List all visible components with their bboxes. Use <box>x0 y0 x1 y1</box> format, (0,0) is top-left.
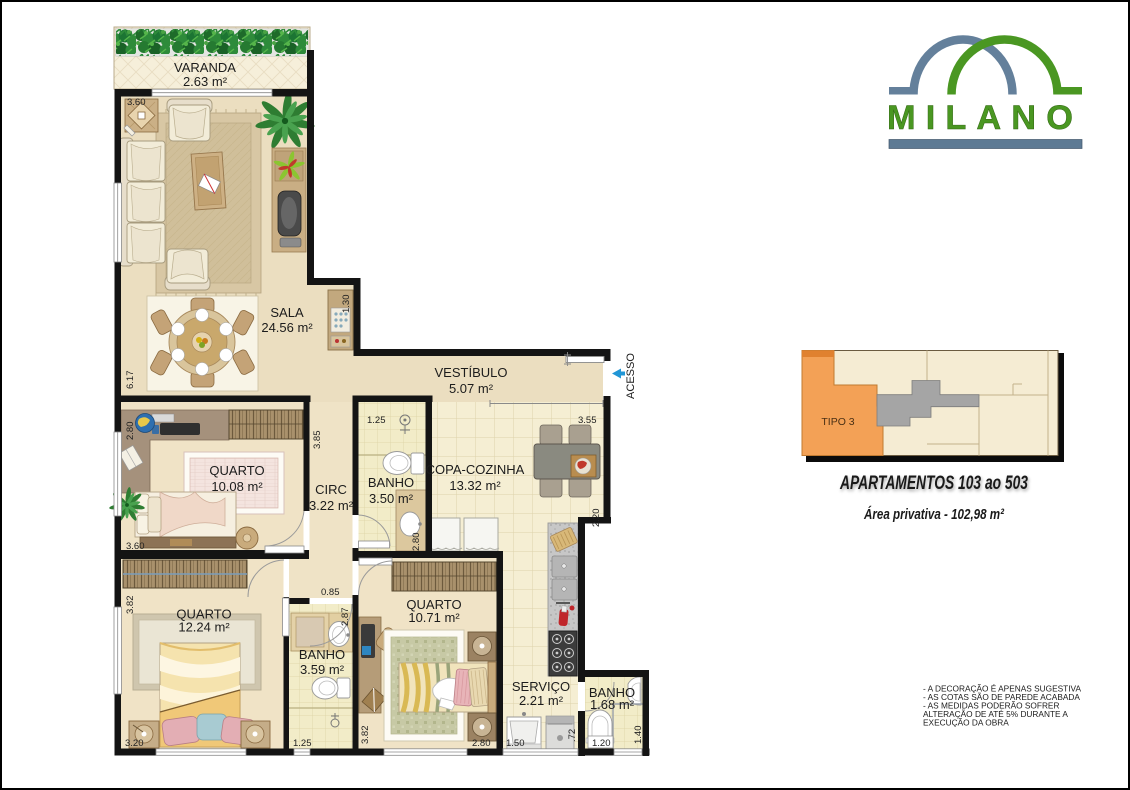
svg-text:3.22 m²: 3.22 m² <box>309 498 354 513</box>
svg-text:Área privativa - 102,98 m²: Área privativa - 102,98 m² <box>863 506 1005 523</box>
svg-text:COPA-COZINHA: COPA-COZINHA <box>426 462 525 477</box>
svg-text:10.71 m²: 10.71 m² <box>408 610 460 625</box>
svg-text:3.82: 3.82 <box>125 596 136 615</box>
svg-text:2.80: 2.80 <box>411 533 422 552</box>
svg-text:VESTÍBULO: VESTÍBULO <box>435 365 508 380</box>
svg-text:BANHO: BANHO <box>368 475 414 490</box>
svg-text:TIPO 3: TIPO 3 <box>821 416 854 428</box>
svg-text:2.20: 2.20 <box>591 509 602 528</box>
svg-text:3.55: 3.55 <box>578 415 597 426</box>
svg-text:APARTAMENTOS 103 ao 503: APARTAMENTOS 103 ao 503 <box>839 472 1028 494</box>
svg-text:3.20: 3.20 <box>125 738 144 749</box>
svg-text:1.25: 1.25 <box>293 738 312 749</box>
svg-text:1.20: 1.20 <box>592 738 611 749</box>
svg-text:VARANDA: VARANDA <box>174 60 236 75</box>
svg-text:1.40: 1.40 <box>633 726 644 745</box>
svg-text:13.32 m²: 13.32 m² <box>449 478 501 493</box>
svg-text:MILANO: MILANO <box>887 99 1083 137</box>
svg-text:1.68 m²: 1.68 m² <box>590 697 635 712</box>
svg-text:BANHO: BANHO <box>299 647 345 662</box>
svg-text:SERVIÇO: SERVIÇO <box>512 679 570 694</box>
svg-text:2.80: 2.80 <box>472 738 491 749</box>
svg-text:10.08 m²: 10.08 m² <box>211 479 263 494</box>
svg-text:5.07 m²: 5.07 m² <box>449 381 494 396</box>
svg-text:2.80: 2.80 <box>125 422 136 441</box>
svg-text:2.63 m²: 2.63 m² <box>183 74 228 89</box>
svg-text:1.25: 1.25 <box>367 415 386 426</box>
svg-text:12.24 m²: 12.24 m² <box>178 620 230 635</box>
svg-text:1.50: 1.50 <box>506 738 525 749</box>
svg-text:24.56 m²: 24.56 m² <box>261 320 313 335</box>
svg-text:0.85: 0.85 <box>321 587 340 598</box>
svg-text:CIRC: CIRC <box>315 482 347 497</box>
svg-text:6.17: 6.17 <box>125 371 136 390</box>
svg-text:3.50 m²: 3.50 m² <box>369 491 414 506</box>
svg-text:2.87: 2.87 <box>340 608 351 627</box>
svg-text:QUARTO: QUARTO <box>209 463 264 478</box>
svg-text:3.60: 3.60 <box>127 97 146 108</box>
svg-text:.72: .72 <box>567 729 578 742</box>
svg-text:3.60: 3.60 <box>126 541 145 552</box>
svg-text:ACESSO: ACESSO <box>625 353 637 399</box>
svg-text:3.59 m²: 3.59 m² <box>300 662 345 677</box>
svg-text:SALA: SALA <box>270 305 304 320</box>
svg-text:1.30: 1.30 <box>341 295 352 314</box>
svg-text:3.85: 3.85 <box>312 431 323 450</box>
svg-text:EXECUÇÃO DA OBRA: EXECUÇÃO DA OBRA <box>923 718 1009 728</box>
svg-text:3.82: 3.82 <box>360 726 371 745</box>
svg-text:2.21 m²: 2.21 m² <box>519 693 564 708</box>
